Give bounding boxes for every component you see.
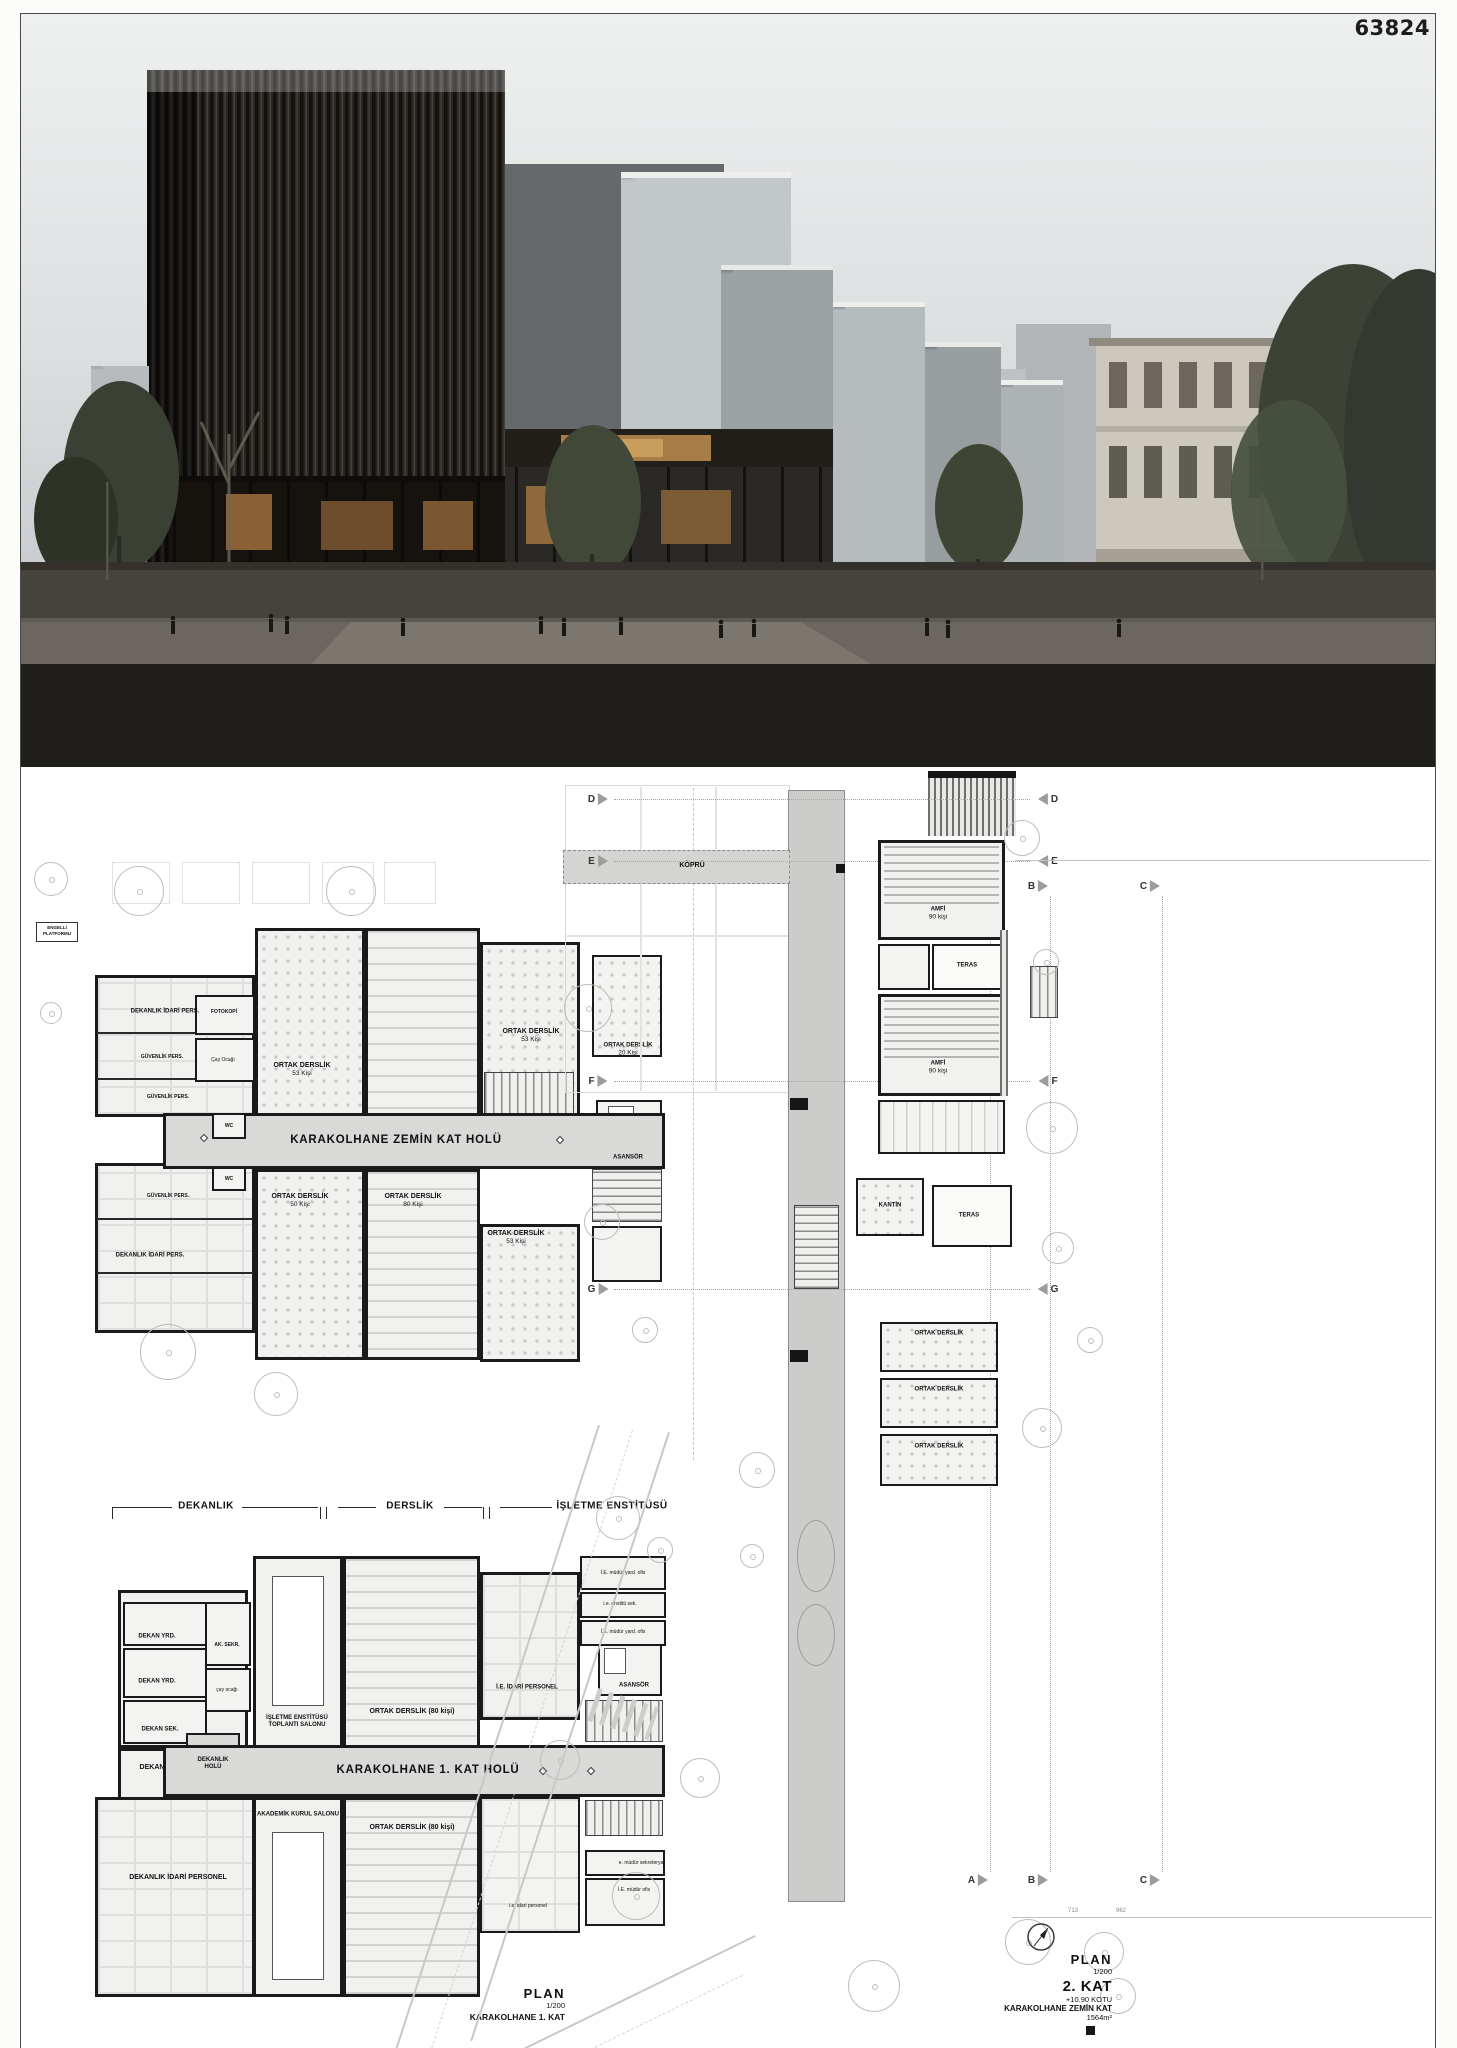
existing-building-outline [565,785,790,1093]
main-tower [147,70,505,570]
tree-circle [564,984,612,1032]
room-label: ORTAK DERSLİK [915,1443,964,1450]
plan-area: 1564m² [992,2013,1112,2022]
bracket-line [338,1507,376,1508]
context-roof-window [252,862,310,904]
room-label: ASANSÖR [613,1154,643,1161]
tree-circle [740,1544,764,1568]
room-label: AK. SEKR. [214,1642,239,1648]
tree-circle [647,1537,673,1563]
room-label: i.e. enstitü sek. [603,1601,636,1607]
room-label: WC [225,1123,233,1129]
tree-circle [612,1872,660,1920]
section-marker-g: G [588,1283,609,1295]
section-marker-e: E [1038,855,1058,867]
section-marker-f: F [1038,1075,1057,1087]
wall-partition [97,1218,253,1220]
platform-text: ENGELLİ PLATFORMU [43,925,71,936]
bracket-line [444,1507,482,1508]
room-label: AMFİ90 kişi [929,1061,947,1076]
tree-circle [584,1204,620,1240]
staff-office [480,1572,580,1720]
section-marker-c: C [1140,880,1160,892]
room-label: Çay Ocağı [211,1057,235,1063]
section-line [614,799,1030,800]
ramp-blob [797,1604,835,1666]
elevator-shaft [604,1648,626,1674]
ramp-blob [797,1520,835,1592]
bracket-tick [483,1507,484,1519]
shaft [836,864,845,873]
plan-word: PLAN [440,1986,565,2001]
section-line [1050,896,1051,1872]
stairs [484,1072,574,1116]
wall-partition [97,1272,253,1274]
board-number: 63824 [1330,16,1430,40]
room-label: FOTOKOPİ [211,1009,237,1015]
corridor-stairs [794,1205,839,1289]
tree-circle [848,1960,900,2012]
room-label: DEKAN SEK. [141,1726,178,1733]
kat1-hall-label: KARAKOLHANE 1. KAT HOLÜ [336,1764,519,1778]
tree-circle [326,866,376,916]
meeting-table [272,1576,324,1706]
office [123,1648,207,1698]
tree-circle [1022,1408,1062,1448]
room-label: ORTAK DERSLİK53 Kişi [273,1062,330,1078]
room-label: ORTAK DERSLİK80 Kişi [384,1193,441,1209]
classroom [255,928,365,1117]
plan-level: +10.90 KOTU [992,1995,1112,2004]
section-label-dekanlik: DEKANLIK [178,1501,234,1512]
amphitheater-seating [884,1000,999,1058]
section-marker-e: E [588,855,608,867]
tree-circle [34,862,68,896]
room-label: TERAS [959,1212,979,1219]
section-marker-d: D [1038,793,1058,805]
bracket-tick [112,1507,113,1519]
room-label: DEKANLIK HOLÜ [192,1757,234,1771]
dimension-line [1015,860,1430,861]
room-label: DEKAN YRD. [138,1633,175,1640]
room-label: ORTAK DERSLİK (80 kişi) [369,1824,454,1832]
section-marker-g: G [1038,1283,1059,1295]
site-title-block: PLAN 1/200 2. KAT +10.90 KOTU KARAKOLHAN… [992,1952,1112,2022]
room-label: DEKANLIK İDARİ PERSONEL [129,1874,227,1882]
bracket-line [242,1507,318,1508]
tree-circle [140,1324,196,1380]
canopy-roof [928,778,1016,836]
plan-name: KARAKOLHANE 1. KAT [440,2012,565,2022]
plan-reference: KARAKOLHANE ZEMİN KAT [992,2004,1112,2013]
staff-office [95,1797,255,1997]
room-label: TERAS [957,962,977,969]
architectural-rendering [21,14,1435,767]
bracket-tick [320,1507,321,1519]
room-label: İ.E. müdür yard. ofis [601,1629,646,1635]
lobby [878,944,930,990]
room-label: ORTAK DERSLİK [915,1386,964,1393]
room-label: DEKANLIK İDARİ PERS. [131,1008,200,1015]
zemin-hall-label: KARAKOLHANE ZEMİN KAT HOLÜ [290,1134,502,1148]
faint-grid-line [567,935,788,937]
kat1-title-block: PLAN 1/200 KARAKOLHANE 1. KAT [440,1986,565,2022]
office [205,1602,251,1666]
plan-floor: 2. KAT [992,1978,1112,1995]
tree-circle [1004,820,1040,856]
north-compass-icon [1026,1922,1056,1952]
faint-grid-line [640,787,642,1091]
room-label: İŞLETME ENSTİTÜSÜ TOPLANTI SALONU [262,1715,332,1729]
meeting-table [272,1832,324,1980]
canopy-edge [928,771,1016,778]
room-label: DEKAN [140,1764,165,1772]
section-marker-f: F [588,1075,607,1087]
plan-word: PLAN [992,1952,1112,1967]
tree-circle [680,1758,720,1798]
faint-grid-line [715,787,717,1091]
plan-scale: 1/200 [440,2001,565,2010]
copy-room [195,995,255,1035]
dimension-value: 713 [1068,1908,1078,1914]
tree-circle [114,866,164,916]
tree-circle [1042,1232,1074,1264]
room-label: ORTAK DERSLİK [915,1330,964,1337]
section-marker-a: A [968,1874,988,1886]
section-marker-d: D [588,793,608,805]
shaft [790,1350,808,1362]
room-label: çay ocağı [216,1687,237,1693]
classroom [343,1556,480,1748]
room-label: AMFİ90 kişi [929,907,947,922]
section-label-derslik: DERSLİK [386,1501,433,1512]
room-label: GÜVENLİK PERS. [147,1193,189,1199]
classroom [365,928,480,1117]
room-label: GÜVENLİK PERS. [141,1054,183,1060]
legend-square [1086,2026,1095,2035]
room-label: DEKANLIK İDARİ PERS. [116,1252,185,1259]
room-label: WC [225,1176,233,1182]
accessible-platform-label: ENGELLİ PLATFORMU [36,922,78,942]
section-marker-b: B [1028,1874,1048,1886]
bracket-tick [489,1507,490,1519]
room-label: ORTAK DERSLİK53 Kişi [502,1028,559,1044]
plan-scale: 1/200 [992,1967,1112,1976]
room-label: ORTAK DERSLİK50 Kişi [271,1193,328,1209]
dimension-value: 962 [1116,1908,1126,1914]
tree-circle [1077,1327,1103,1353]
context-roof-window [384,862,436,904]
tree-circle [739,1452,775,1488]
room-label: ASANSÖR [619,1682,649,1689]
stairs [585,1800,663,1836]
room-label: ORTAK DERSLİK (80 kişi) [369,1708,454,1716]
tree-circle [1033,949,1059,975]
bracket-line [500,1507,552,1508]
context-roof-window [182,862,240,904]
dimension-line [1012,1917,1432,1918]
tree-circle [632,1317,658,1343]
tree-circle [40,1002,62,1024]
amphitheater-seating [884,846,999,904]
room-label: ORTAK DERSLİK53 Kişi [487,1230,544,1246]
service-block [878,1100,1005,1154]
cantilever-warm-band [489,429,833,467]
room-label: DEKAN YRD. [138,1678,175,1685]
tree-circle [1026,1102,1078,1154]
staff-office [480,1797,580,1933]
section-wall [1000,930,1008,1096]
shaft [790,1098,808,1110]
bracket-tick [326,1507,327,1519]
room-label: AKADEMİK KURUL SALONU [257,1811,339,1818]
section-line [614,1289,1030,1290]
bracket-line [112,1507,172,1508]
room-label: GÜVENLİK PERS. [147,1094,189,1100]
classroom [880,1434,998,1486]
podium-base [489,467,833,562]
room-label: e. müdür sekreterya [619,1860,663,1866]
section-line [1162,896,1163,1872]
tree-circle [540,1740,580,1780]
section-marker-b: B [1028,880,1048,892]
corridor-spine [788,790,845,1902]
bridge-label: KÖPRÜ [679,862,704,870]
section-marker-c: C [1140,1874,1160,1886]
tree-circle [254,1372,298,1416]
room-label: KANTİN [879,1202,902,1209]
